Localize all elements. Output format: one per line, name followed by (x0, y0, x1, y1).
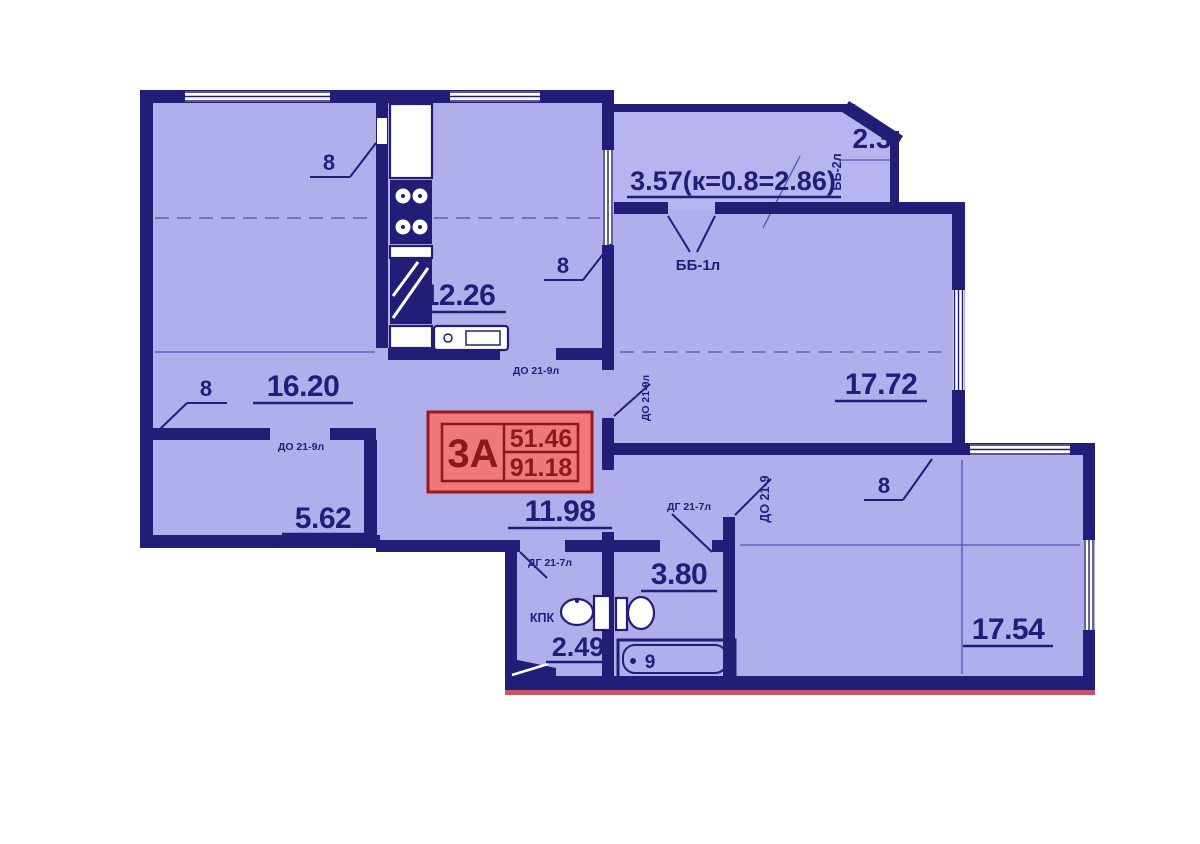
window-mark-2: 8 (557, 253, 569, 278)
window-kitchen-icon (450, 91, 540, 102)
window-mark-4: 8 (878, 473, 890, 498)
area-bedroom-2: 17.54 (972, 613, 1045, 646)
floor-plan-page: 16.20 12.26 17.72 5.62 11.98 3.80 2.49 1… (0, 0, 1200, 844)
toilet-icon (616, 597, 654, 630)
bathtub-mark: 9 (645, 652, 656, 673)
door-code-bathroom: ДГ 21-7л (667, 501, 711, 513)
kitchen-appliance-icon (434, 326, 508, 350)
stove-icon (390, 180, 432, 244)
area-loggia: 3.57(к=0.8=2.86) (630, 166, 836, 196)
door-code-kitchen: ДО 21-9л (513, 365, 559, 377)
area-bedroom-1: 16.20 (267, 370, 340, 403)
door-code-living: ДО 21-9л (640, 375, 652, 421)
door-code-bedroom1: ДО 21-9л (278, 441, 324, 453)
unit-living-area: 51.46 (510, 425, 573, 453)
area-living: 17.72 (845, 368, 918, 401)
window-mark-1: 8 (323, 150, 335, 175)
unit-total-area: 91.18 (510, 454, 573, 482)
area-balcony: 2.3 (853, 123, 892, 154)
window-bedroom2-top-icon (970, 444, 1070, 455)
window-bedroom1-icon (185, 91, 330, 102)
balcony-block-2-label: ББ-2л (830, 153, 844, 190)
area-bathroom: 3.80 (651, 558, 707, 591)
balcony-block-1-label: ББ-1л (676, 257, 720, 274)
window-living-icon (953, 290, 964, 390)
floor-plan-drawing: 16.20 12.26 17.72 5.62 11.98 3.80 2.49 1… (0, 0, 1200, 844)
window-mark-3: 8 (200, 376, 212, 401)
area-kitchen: 12.26 (423, 279, 496, 312)
unit-tag[interactable]: 3А 51.46 91.18 (428, 412, 592, 492)
unit-type-label: 3А (447, 432, 498, 476)
area-corridor: 5.62 (295, 502, 351, 535)
door-code-bedroom2: ДО 21-9 (758, 475, 772, 522)
window-bedroom2-right-icon (1084, 540, 1094, 630)
area-hall: 11.98 (525, 495, 596, 528)
area-laundry: 2.49 (552, 632, 605, 662)
window-kitchen-loggia-icon (603, 150, 613, 245)
door-code-laundry: ДГ 21-7л (528, 557, 572, 569)
boiler-label: КПК (530, 611, 555, 625)
baseline-red-strip (505, 690, 1095, 695)
